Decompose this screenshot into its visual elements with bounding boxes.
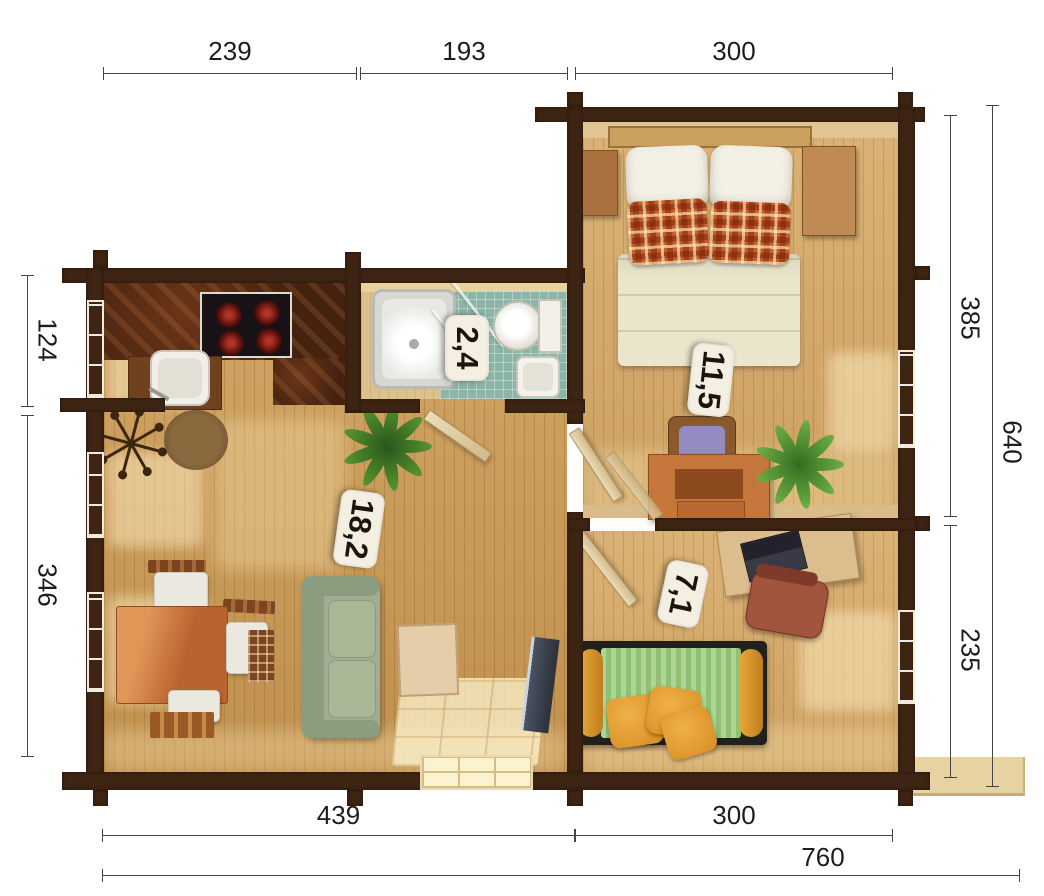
pillow-plaid <box>709 201 791 266</box>
dim-line-top-1 <box>103 73 357 74</box>
stove-burner <box>256 328 282 354</box>
stove-burner <box>218 330 244 356</box>
sofa-arm <box>302 720 380 738</box>
dim-line-bottom-2 <box>575 835 893 836</box>
bedroom-area-value: 11,5 <box>690 349 732 411</box>
room-label-bedroom: 11,5 <box>686 342 735 418</box>
office-window <box>898 610 915 704</box>
bench-slats <box>150 712 214 738</box>
living-window <box>87 452 104 538</box>
daybed-bolster <box>739 649 763 737</box>
floor-plan: 2,4 11,5 18,2 7,1 239 193 300 439 300 76… <box>0 0 1044 896</box>
bathroom-sink-bowl <box>523 363 553 391</box>
wall-center-divider-upper <box>567 107 583 424</box>
living-area-value: 18,2 <box>337 497 381 562</box>
kitchen-window <box>87 300 104 398</box>
dim-label-bottom-1: 439 <box>102 800 575 831</box>
dining-window <box>87 592 104 692</box>
dining-chair-lattice-back <box>248 630 274 682</box>
round-rug <box>164 410 228 470</box>
sofa-arm <box>302 576 380 596</box>
dim-label-bottom-total: 760 <box>768 842 878 873</box>
wall-top-left-section <box>62 268 585 283</box>
stove-cooktop <box>200 292 292 358</box>
log-end <box>898 790 913 806</box>
dim-line-top-2 <box>360 73 568 74</box>
coffee-table <box>397 623 459 697</box>
bathroom-area-value: 2,4 <box>449 326 485 369</box>
toilet-bowl <box>493 301 543 351</box>
bed-headboard <box>608 126 812 148</box>
log-end <box>915 266 930 280</box>
dim-line-left-2 <box>27 415 28 757</box>
dim-label-top-2: 193 <box>360 36 568 67</box>
terrace-glass-door <box>420 755 533 790</box>
dim-label-top-3: 300 <box>575 36 893 67</box>
sofa <box>302 576 380 738</box>
wall-office-top <box>655 518 930 531</box>
room-label-bathroom: 2,4 <box>445 315 489 381</box>
sofa-back <box>302 576 324 738</box>
dim-label-left-2: 346 <box>32 563 63 606</box>
bedroom-window-light <box>828 352 896 452</box>
pillow-plaid <box>626 198 709 266</box>
toilet-tank <box>538 299 562 353</box>
stove-burner <box>216 302 242 328</box>
sofa-cushion <box>328 600 376 658</box>
log-end <box>93 250 108 268</box>
dim-label-right-2: 235 <box>955 628 986 671</box>
dim-label-right-total: 640 <box>997 420 1028 463</box>
log-end <box>898 92 913 107</box>
shower-drain <box>409 339 419 349</box>
wall-bathroom-bottom-right <box>505 399 585 413</box>
dim-line-right-total <box>992 105 993 787</box>
dim-line-right-2 <box>950 525 951 778</box>
log-end <box>567 92 583 107</box>
dining-chair-back <box>223 599 276 615</box>
dim-line-bottom-1 <box>102 835 575 836</box>
dim-label-bottom-2: 300 <box>575 800 893 831</box>
wall-office-top-left <box>567 518 590 531</box>
sofa-cushion <box>328 660 376 718</box>
bedroom-window <box>898 350 915 448</box>
nightstand-right <box>802 146 856 236</box>
log-end <box>915 516 930 530</box>
stove-burner <box>254 300 280 326</box>
bedroom-dresser <box>648 454 770 520</box>
bathroom-sink <box>516 356 560 398</box>
dim-label-right-1: 385 <box>955 296 986 339</box>
sink-bowl <box>158 358 202 398</box>
wall-kitchen-stub <box>60 398 165 412</box>
shower-tray <box>372 289 456 389</box>
living-sun-patch <box>215 420 345 570</box>
open-drawer <box>675 469 743 499</box>
wall-center-divider-lower <box>567 512 583 772</box>
wall-kitchen-bathroom-divider <box>345 252 361 412</box>
dim-line-top-3 <box>575 73 893 74</box>
dim-line-bottom-total <box>102 875 1020 876</box>
office-area-value: 7,1 <box>661 569 705 619</box>
dim-line-left-1 <box>27 275 28 407</box>
dim-label-top-1: 239 <box>103 36 357 67</box>
wall-top-right-section <box>535 107 925 122</box>
dim-line-right-1 <box>950 115 951 517</box>
dim-label-left-1: 124 <box>32 318 63 361</box>
